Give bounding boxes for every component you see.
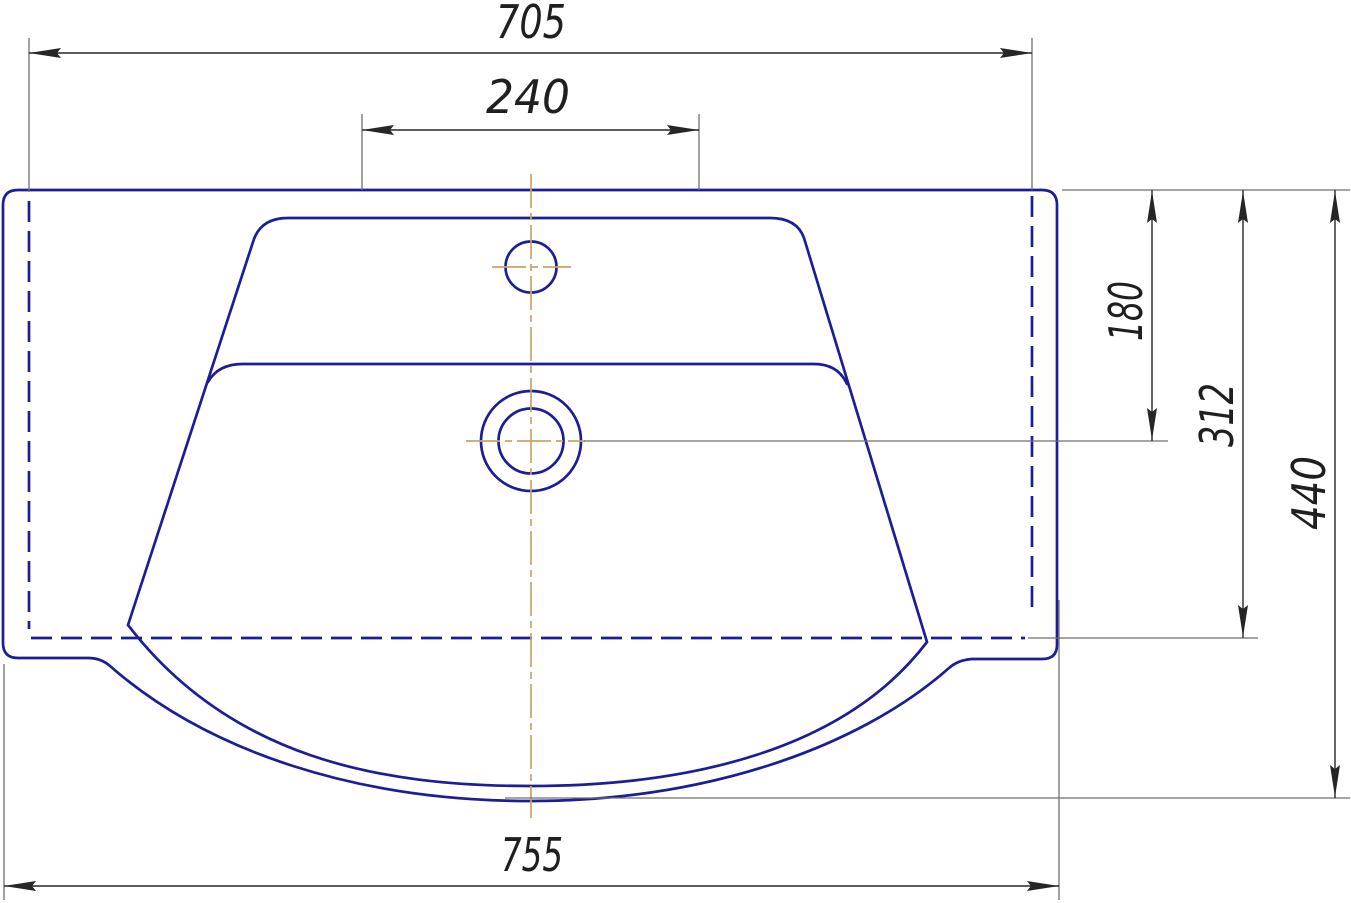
dimension-value: 440 <box>1282 456 1336 530</box>
arrow-right-icon <box>1000 48 1032 58</box>
dimension-faucet-offset: 240 <box>362 70 699 190</box>
arrow-up-icon <box>1238 191 1248 223</box>
dimension-value: 180 <box>1099 281 1153 341</box>
arrow-up-icon <box>1147 191 1157 223</box>
dimension-overall-depth: 440 <box>505 190 1350 798</box>
dimension-value: 240 <box>486 70 570 124</box>
arrow-right-icon <box>667 125 699 135</box>
overflow-shelf-line <box>208 364 847 384</box>
dimension-value: 312 <box>1190 383 1244 447</box>
dimension-depth-to-recess: 312 <box>1028 190 1258 638</box>
dimension-depth-to-drain: 180 <box>584 190 1168 441</box>
arrow-left-icon <box>362 125 394 135</box>
arrow-down-icon <box>1238 605 1248 637</box>
dimension-value: 755 <box>501 828 563 882</box>
arrow-left-icon <box>29 48 61 58</box>
sink-outer-outline <box>3 190 1057 801</box>
dimension-value: 705 <box>496 0 566 49</box>
arrow-down-icon <box>1147 408 1157 440</box>
centerlines-group <box>466 174 585 818</box>
sink-top-view-drawing: 705 240 180 312 440 <box>0 0 1351 903</box>
arrow-left-icon <box>4 881 36 891</box>
sink-outline-group <box>3 190 1057 801</box>
basin-inner-outline <box>128 218 927 786</box>
arrow-up-icon <box>1330 191 1340 223</box>
technical-drawing-page: 705 240 180 312 440 <box>0 0 1351 903</box>
arrow-down-icon <box>1330 765 1340 797</box>
arrow-right-icon <box>1027 881 1059 891</box>
